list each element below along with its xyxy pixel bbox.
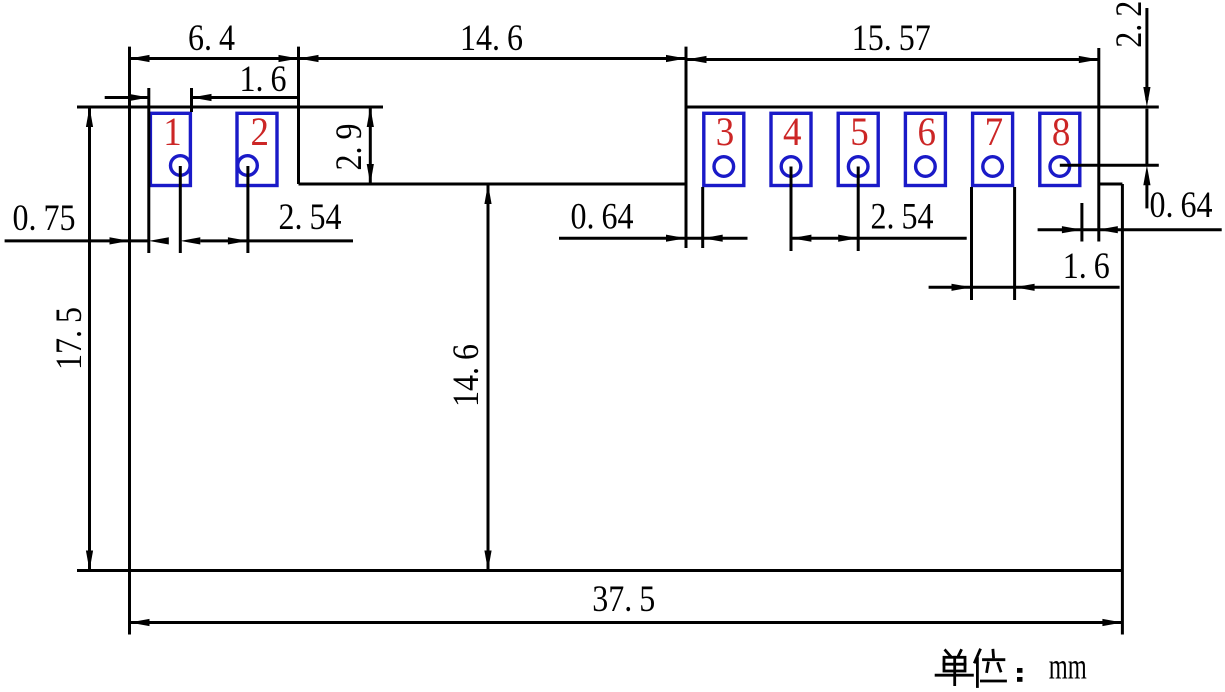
svg-text:0.64: 0.64 (571, 196, 634, 237)
svg-text:14.6: 14.6 (460, 18, 523, 59)
svg-text:1: 1 (163, 109, 181, 154)
svg-text:0.64: 0.64 (1150, 185, 1213, 226)
svg-text:2.54: 2.54 (871, 196, 934, 237)
svg-text:37.5: 37.5 (592, 579, 655, 620)
svg-text:6: 6 (917, 109, 935, 154)
svg-text:mm: mm (1049, 646, 1087, 687)
svg-text:2.54: 2.54 (279, 197, 342, 238)
svg-text:8: 8 (1052, 109, 1070, 154)
svg-text:14.6: 14.6 (446, 344, 487, 407)
svg-text:3: 3 (716, 109, 734, 154)
svg-text:1.6: 1.6 (240, 59, 287, 100)
svg-text:15.57: 15.57 (852, 18, 931, 59)
svg-text:1.6: 1.6 (1063, 246, 1110, 287)
svg-text:5: 5 (850, 109, 868, 154)
svg-text:2: 2 (251, 109, 269, 154)
svg-text:7: 7 (985, 109, 1003, 154)
svg-text:2.2: 2.2 (1109, 1, 1150, 48)
svg-text:0.75: 0.75 (13, 198, 76, 239)
svg-text:4: 4 (783, 109, 801, 154)
svg-text:2.9: 2.9 (329, 124, 370, 171)
svg-text:6.4: 6.4 (188, 18, 235, 59)
svg-text:17.5: 17.5 (49, 307, 90, 370)
